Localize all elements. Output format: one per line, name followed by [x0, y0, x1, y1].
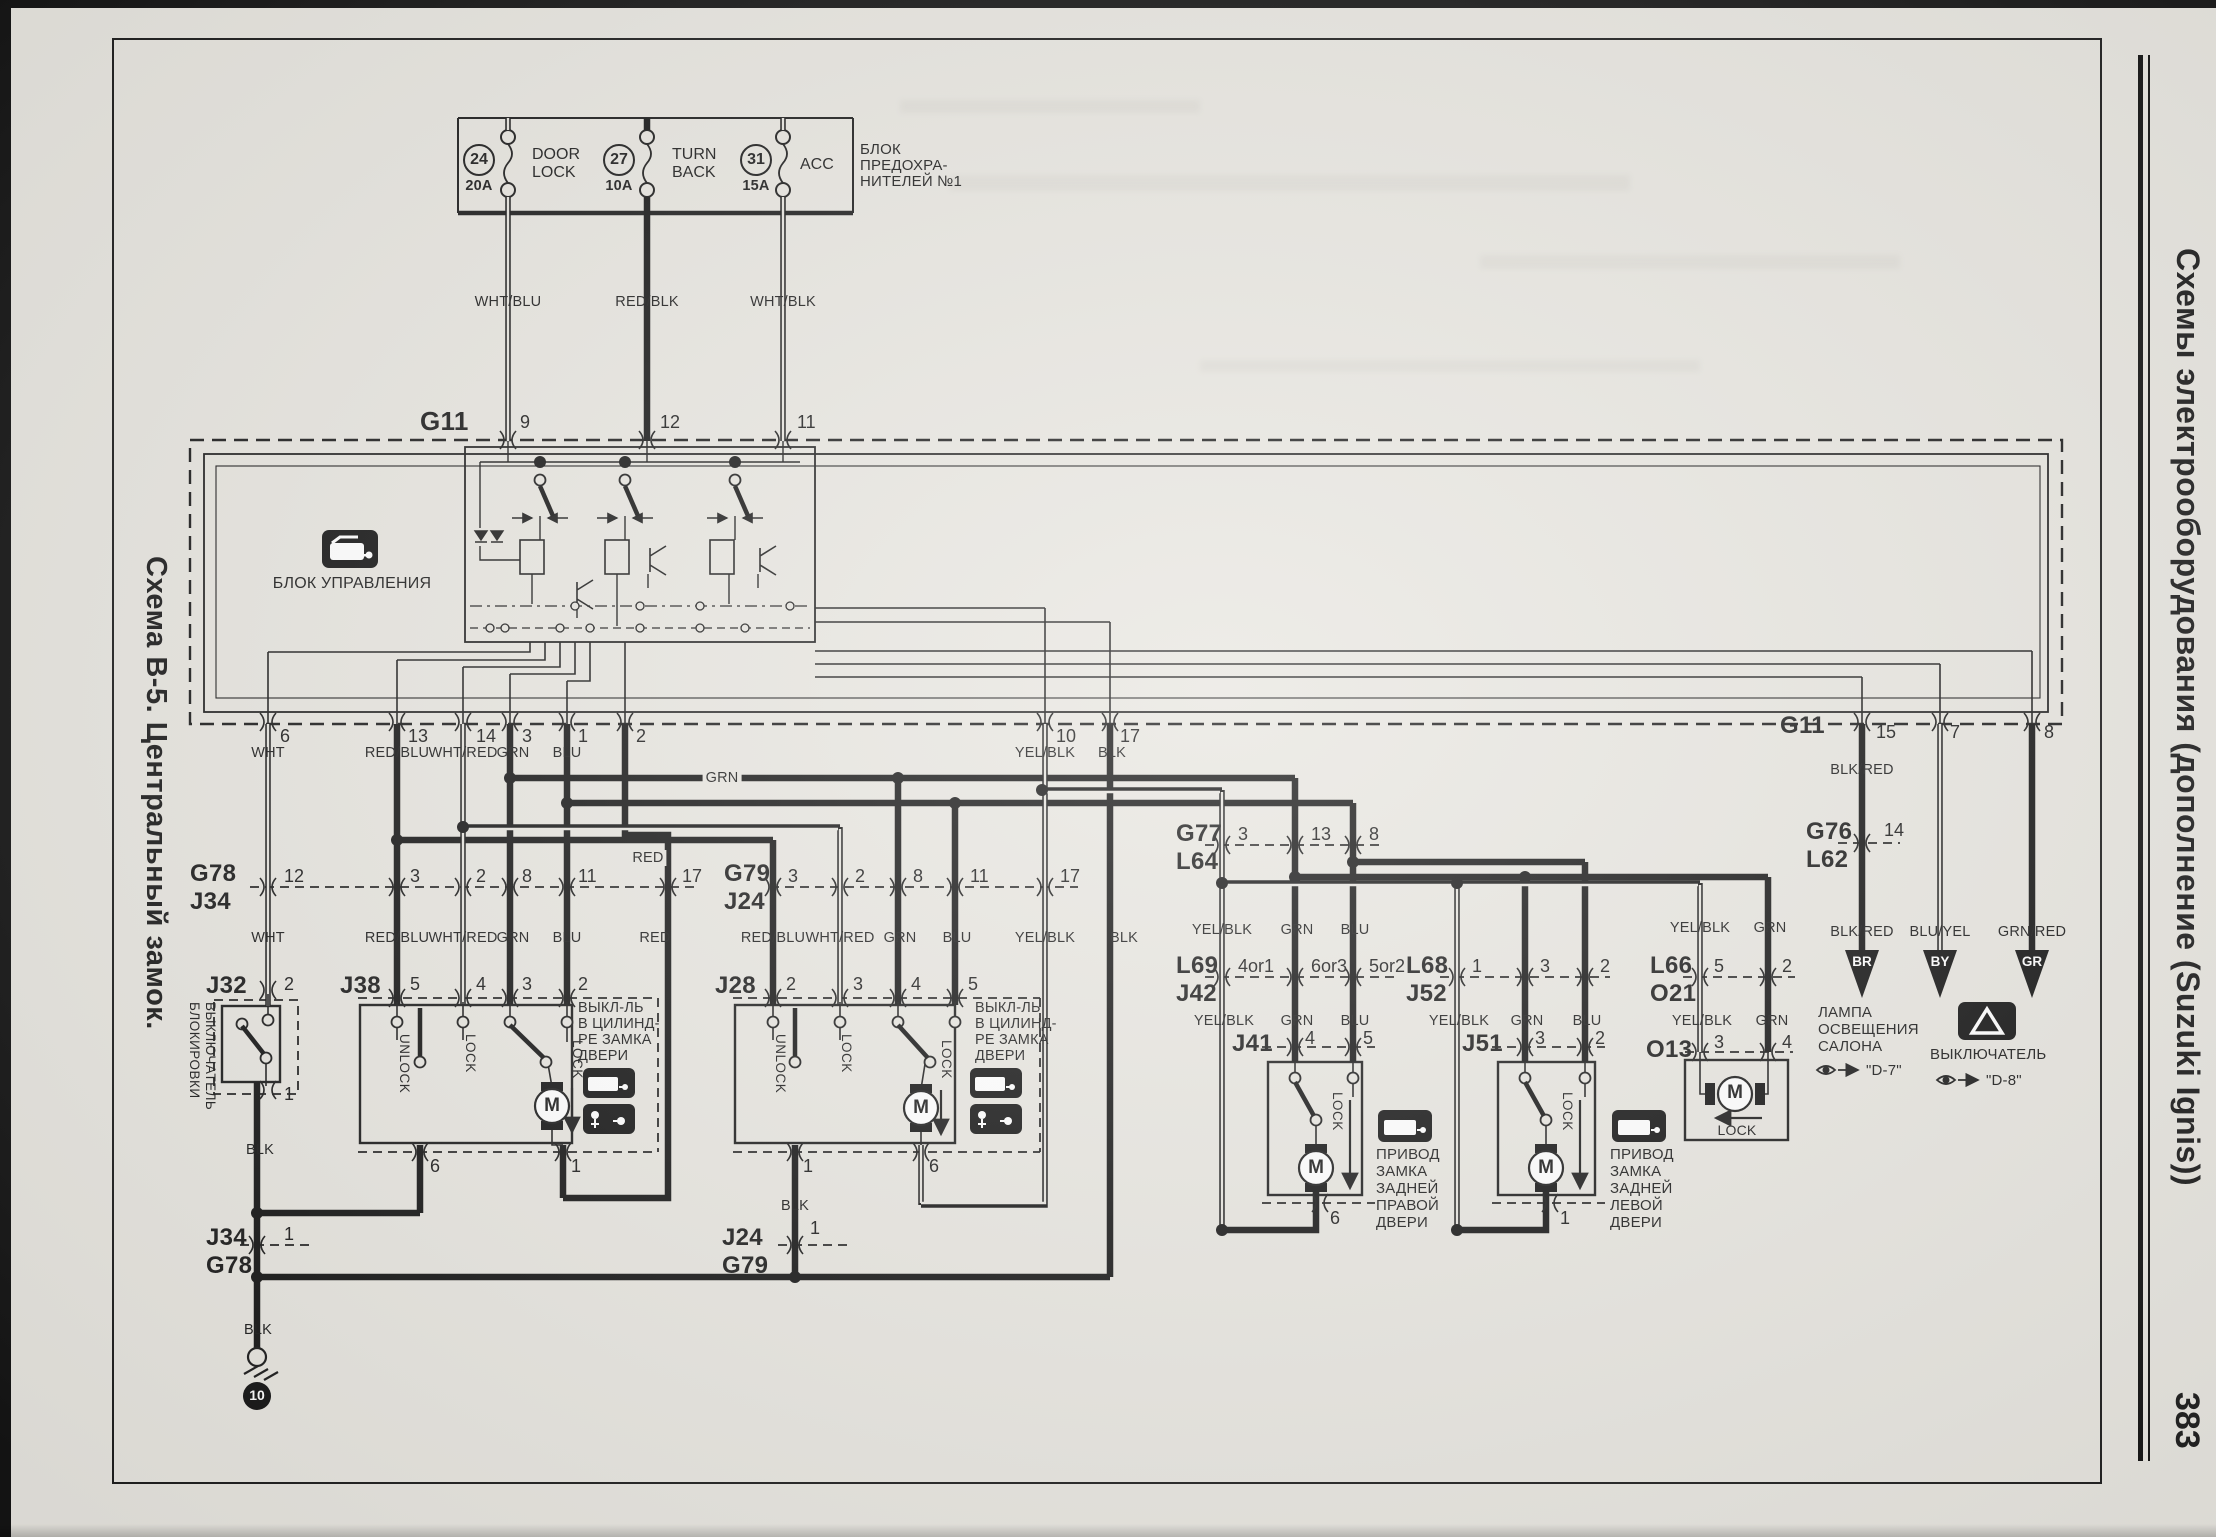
- wire-grn: [510, 724, 1768, 1062]
- wire-label: BLK: [1110, 930, 1138, 946]
- wire-label: YEL/BLK: [1429, 1013, 1489, 1029]
- pin: 2: [284, 974, 294, 995]
- junction-dot: [251, 1207, 263, 1219]
- contact-circle: [392, 1017, 403, 1028]
- fuse-31-amp: 15A: [742, 178, 769, 194]
- j32-label: ВЫКЛЮЧАТЕЛЬБЛОКИРОВКИ: [186, 1002, 218, 1112]
- junction-dot: [1347, 856, 1359, 868]
- switch-lever: [898, 1025, 928, 1058]
- j28-lock: LOCK: [839, 1034, 854, 1073]
- switch-lever: [1295, 1082, 1314, 1116]
- circuit-terminal: [571, 602, 579, 610]
- pin: 1: [803, 1156, 813, 1177]
- pin: 12: [284, 866, 304, 887]
- junction-dot: [457, 821, 469, 833]
- scan-edge-bottom: [0, 1524, 2216, 1537]
- cu-pin: 17: [1120, 726, 1140, 747]
- wire-label: BLU: [1573, 1013, 1602, 1029]
- connector-l62: L62: [1806, 846, 1848, 874]
- contact-circle: [415, 1057, 426, 1068]
- junction-dot: [1216, 1224, 1228, 1236]
- j51-lock: LOCK: [1560, 1092, 1575, 1131]
- junction-dot: [534, 456, 546, 468]
- fuse-27-name: TURN: [672, 146, 716, 164]
- junction-dot: [1451, 1224, 1463, 1236]
- pin: 2: [786, 974, 796, 995]
- j41-label: ДВЕРИ: [1376, 1214, 1428, 1231]
- connector-j52: J52: [1406, 980, 1447, 1008]
- switch-ref: "D-8": [1986, 1072, 2022, 1089]
- pin: 3: [522, 974, 532, 995]
- junction-dot: [391, 834, 403, 846]
- wire-label: RED: [629, 850, 666, 866]
- wire-label: WHT: [251, 745, 285, 761]
- wire-label: BLK: [781, 1198, 809, 1214]
- junction-dot: [1036, 784, 1048, 796]
- lock-arrows: [572, 1088, 1762, 1188]
- contact-circle: [263, 1015, 274, 1026]
- connector-g79: G79: [724, 860, 770, 888]
- contact-circle: [620, 475, 631, 486]
- wire-label: WHT: [251, 930, 285, 946]
- cu-pin: 8: [2044, 722, 2054, 743]
- wire-label: GRN: [1754, 920, 1787, 936]
- cyl-label: ДВЕРИ: [975, 1048, 1025, 1064]
- wire-label: GRN: [1281, 922, 1314, 938]
- fuse-box: [458, 118, 853, 213]
- pin: 4: [1782, 1032, 1792, 1053]
- circuit-terminal: [786, 602, 794, 610]
- connector-g76: G76: [1806, 818, 1852, 846]
- j41-label: ПРИВОД: [1376, 1146, 1440, 1163]
- wire-label: WHT/RED: [428, 930, 497, 946]
- pin: 17: [1060, 866, 1080, 887]
- cyl-label: В ЦИЛИНД-: [975, 1016, 1057, 1032]
- scheme-title: Схема B-5. Центральный замок.: [139, 556, 172, 1030]
- lamp-label: САЛОНА: [1818, 1038, 1882, 1055]
- wire-label: GRN: [884, 930, 917, 946]
- wire-label: GRN: [1281, 1013, 1314, 1029]
- scanned-page: 24 20A DOOR LOCK 27 10A TURN BACK 31 15A…: [0, 0, 2216, 1537]
- fuse-24-number: 24: [470, 151, 488, 169]
- fuse-27-name: BACK: [672, 164, 716, 182]
- connector-g78-b: G78: [206, 1252, 252, 1280]
- pin: 1: [810, 1218, 820, 1239]
- pin: 1: [571, 1156, 581, 1177]
- switch-lever: [1525, 1082, 1544, 1116]
- wire-label: BLK: [246, 1142, 274, 1158]
- fuse-box-title: НИТЕЛЕЙ №1: [860, 173, 962, 190]
- circuit-terminal: [636, 602, 644, 610]
- cyl-label: РЕ ЗАМКА: [975, 1032, 1049, 1048]
- cu-pin: 15: [1876, 722, 1896, 743]
- switch-lever: [510, 1025, 544, 1058]
- arrow-code-by: BY: [1931, 954, 1950, 969]
- hazard-icon: [1958, 1002, 2016, 1040]
- control-unit-circuit: [470, 441, 810, 628]
- cu-pin: 7: [1950, 722, 1960, 743]
- contact-circle: [790, 1057, 801, 1068]
- cyl-label: В ЦИЛИНД-: [578, 1016, 660, 1032]
- pin: 3: [1714, 1032, 1724, 1053]
- pin: 3: [853, 974, 863, 995]
- component-j28: J28: [715, 972, 756, 1000]
- j28-lock2: LOCK: [939, 1040, 954, 1079]
- component-j41: J41: [1232, 1030, 1273, 1058]
- contact-circle: [1348, 1073, 1359, 1084]
- pin: 4or1: [1238, 956, 1274, 977]
- connector-g11-right: G11: [1780, 712, 1825, 740]
- fuse-31-number: 31: [747, 151, 765, 169]
- pin: 3: [410, 866, 420, 887]
- arrow-code-gr: GR: [2022, 954, 2042, 969]
- circuit-terminal: [586, 624, 594, 632]
- pin: 8: [522, 866, 532, 887]
- cu-pin: 2: [636, 726, 646, 747]
- j41-label: ПРАВОЙ: [1376, 1197, 1439, 1214]
- wire-label: GRN/RED: [1998, 924, 2066, 940]
- wire-label: YEL/BLK: [1015, 930, 1075, 946]
- junction-dot: [949, 797, 961, 809]
- cu-pin: 3: [522, 726, 532, 747]
- switch-label: ВЫКЛЮЧАТЕЛЬ: [1930, 1046, 2046, 1063]
- j51-label: ПРИВОД: [1610, 1146, 1674, 1163]
- circuit-terminal: [501, 624, 509, 632]
- connector-l66: L66: [1650, 952, 1692, 980]
- g11-pin: 12: [660, 412, 680, 433]
- circuit-terminal: [696, 602, 704, 610]
- pin: 14: [1884, 820, 1904, 841]
- pin: 3: [1238, 824, 1248, 845]
- wire-label: GRN: [1756, 1013, 1789, 1029]
- pin: 5: [410, 974, 420, 995]
- g11-pin: 9: [520, 412, 530, 433]
- connector-l64: L64: [1176, 848, 1218, 876]
- wire-label: RED/BLU: [741, 930, 805, 946]
- contact-circle: [458, 1017, 469, 1028]
- contact-circle: [1290, 1073, 1301, 1084]
- fuse-24-name: LOCK: [532, 164, 576, 182]
- contact-circle: [950, 1017, 961, 1028]
- component-o13: O13: [1646, 1036, 1692, 1064]
- ground-number: 10: [249, 1387, 265, 1403]
- wire-label: BLU: [1341, 1013, 1370, 1029]
- pin: 2: [476, 866, 486, 887]
- pin: 4: [1305, 1028, 1315, 1049]
- lamp-label: ОСВЕЩЕНИЯ: [1818, 1021, 1919, 1038]
- circuit-terminal: [556, 624, 564, 632]
- motor-letter: M: [544, 1095, 560, 1117]
- pin: 17: [682, 866, 702, 887]
- wire-label: WHT/RED: [428, 745, 497, 761]
- connector-o21: O21: [1650, 980, 1696, 1008]
- connector-l69: L69: [1176, 952, 1218, 980]
- fuse-24-amp: 20A: [465, 178, 492, 194]
- connector-j34: J34: [190, 888, 231, 916]
- circuit-terminal: [636, 624, 644, 632]
- wire-label: GRN: [497, 930, 530, 946]
- fuse-27-number: 27: [610, 151, 628, 169]
- connector-g11: G11: [420, 406, 469, 437]
- j38-unlock: UNLOCK: [397, 1034, 412, 1093]
- contact-circle: [730, 475, 741, 486]
- wire-label: YEL/BLK: [1015, 745, 1075, 761]
- wire-label: WHT/RED: [805, 930, 874, 946]
- pin-bracket: [260, 1081, 276, 1099]
- wire-label: BLK/RED: [1830, 762, 1893, 778]
- o13-lock: LOCK: [1718, 1122, 1757, 1138]
- j41-label: ЗАДНЕЙ: [1376, 1180, 1439, 1197]
- connector-j42: J42: [1176, 980, 1217, 1008]
- pin: 11: [578, 866, 597, 887]
- contact-circle: [768, 1017, 779, 1028]
- contact-circle: [562, 1017, 573, 1028]
- g11-pin: 11: [797, 412, 816, 433]
- junction-dot: [729, 456, 741, 468]
- junction-dot: [1451, 877, 1463, 889]
- motor-letter: M: [1727, 1082, 1743, 1104]
- pin: 4: [476, 974, 486, 995]
- junction-dot: [619, 456, 631, 468]
- pin: 3: [1535, 1028, 1545, 1049]
- pin: 4: [911, 974, 921, 995]
- wire-label: YEL/BLK: [1672, 1013, 1732, 1029]
- control-unit-box: [190, 440, 2062, 724]
- cu-pin: 13: [408, 726, 428, 747]
- junction-dot: [561, 797, 573, 809]
- circuit-terminal: [486, 624, 494, 632]
- pin: 3: [1540, 956, 1550, 977]
- pin: 5: [1363, 1028, 1373, 1049]
- pin: 2: [855, 866, 865, 887]
- pin: 6or3: [1311, 956, 1347, 977]
- component-j38: J38: [340, 972, 381, 1000]
- wire-label: GRN: [497, 745, 530, 761]
- junction-dot: [1216, 877, 1228, 889]
- switch-lever: [242, 1026, 264, 1054]
- arrow-code-br: BR: [1852, 954, 1872, 969]
- contact-circle: [1580, 1073, 1591, 1084]
- wire-label: RED/BLU: [365, 745, 429, 761]
- pin: 2: [1595, 1028, 1605, 1049]
- pin: 1: [284, 1084, 294, 1105]
- motor-letter: M: [1308, 1157, 1324, 1179]
- contact-circle: [535, 475, 546, 486]
- switch-lever: [625, 486, 638, 516]
- wire-label: BLU: [553, 930, 582, 946]
- pin: 1: [284, 1224, 294, 1245]
- wire-label: YEL/BLK: [1670, 920, 1730, 936]
- j51-label: ЛЕВОЙ: [1610, 1197, 1663, 1214]
- wire-label: RED: [639, 930, 670, 946]
- connector-j34-b: J34: [206, 1224, 247, 1252]
- j51-label: ЗАДНЕЙ: [1610, 1180, 1673, 1197]
- wire-label: BLK: [244, 1322, 272, 1338]
- wire-label: WHT/BLU: [475, 294, 542, 310]
- j41-label: ЗАМКА: [1376, 1163, 1427, 1180]
- connector-j24: J24: [724, 888, 765, 916]
- connector-g78: G78: [190, 860, 236, 888]
- fuse-24-name: DOOR: [532, 146, 580, 164]
- wire-label: BLU: [943, 930, 972, 946]
- pin: 2: [578, 974, 588, 995]
- j38-lock: LOCK: [463, 1034, 478, 1073]
- pin: 8: [1369, 824, 1379, 845]
- cu-pin: 14: [476, 726, 496, 747]
- pin: 6: [430, 1156, 440, 1177]
- wire-label: BLU: [553, 745, 582, 761]
- wire-label: BLK: [1098, 745, 1126, 761]
- junction-dot: [1289, 871, 1301, 883]
- junction-dot: [504, 772, 516, 784]
- wire-label: GRN: [703, 770, 742, 786]
- pin: 8: [913, 866, 923, 887]
- cu-pin: 1: [578, 726, 588, 747]
- j28-unlock: UNLOCK: [773, 1034, 788, 1093]
- wire-label: YEL/BLK: [1194, 1013, 1254, 1029]
- connector-g77: G77: [1176, 820, 1222, 848]
- cyl-label: ВЫКЛ-ЛЬ: [578, 1000, 644, 1016]
- junction-dot: [789, 1271, 801, 1283]
- lamp-label: ЛАМПА: [1818, 1004, 1872, 1021]
- cyl-label: ДВЕРИ: [578, 1048, 628, 1064]
- junction-dot: [892, 772, 904, 784]
- pin: 2: [1782, 956, 1792, 977]
- pin: 1: [1472, 956, 1482, 977]
- wire-label: BLK/RED: [1830, 924, 1893, 940]
- motor-letter: M: [1538, 1157, 1554, 1179]
- pin: 1: [1560, 1208, 1570, 1229]
- component-j51: J51: [1462, 1030, 1503, 1058]
- wire-label: WHT/BLK: [750, 294, 816, 310]
- cu-pin: 10: [1056, 726, 1076, 747]
- chapter-title: Схемы электрооборудования (дополнение (S…: [2169, 248, 2206, 1186]
- j51-label: ЗАМКА: [1610, 1163, 1661, 1180]
- component-j32: J32: [206, 972, 247, 1000]
- wire-label: RED/BLU: [365, 930, 429, 946]
- contact-circle: [1520, 1073, 1531, 1084]
- wire-label: GRN: [1511, 1013, 1544, 1029]
- j41-lock: LOCK: [1330, 1092, 1345, 1131]
- cu-pin: 6: [280, 726, 290, 747]
- fuse-box-title: БЛОК: [860, 141, 901, 158]
- circuit-terminal: [696, 624, 704, 632]
- lamp-ref: "D-7": [1866, 1062, 1902, 1079]
- switch-lever: [540, 486, 553, 516]
- switch-lever: [735, 486, 748, 516]
- wire-label: YEL/BLK: [1192, 922, 1252, 938]
- pin: 5: [1714, 956, 1724, 977]
- pin: 6: [929, 1156, 939, 1177]
- circuit-terminal: [741, 624, 749, 632]
- pin: 3: [788, 866, 798, 887]
- pin: 2: [1600, 956, 1610, 977]
- fuse-box-title: ПРЕДОХРА-: [860, 157, 948, 174]
- fuse-27-amp: 10A: [605, 178, 632, 194]
- wire-label: RED/BLK: [615, 294, 678, 310]
- connector-j24-b: J24: [722, 1224, 763, 1252]
- fuse-31-name: ACC: [800, 156, 834, 174]
- cyl-label: РЕ ЗАМКА: [578, 1032, 652, 1048]
- connector-l68: L68: [1406, 952, 1448, 980]
- contact-circle: [835, 1017, 846, 1028]
- wire-label: BLU: [1341, 922, 1370, 938]
- pin: 13: [1311, 824, 1331, 845]
- page-number: 383: [2167, 1392, 2206, 1449]
- motor-letter: M: [913, 1097, 929, 1119]
- junction-dot: [251, 1271, 263, 1283]
- connector-g79-b: G79: [722, 1252, 768, 1280]
- junction-dot: [1519, 871, 1531, 883]
- control-unit-label: БЛОК УПРАВЛЕНИЯ: [273, 575, 431, 593]
- pin: 6: [1330, 1208, 1340, 1229]
- pin: 11: [970, 866, 989, 887]
- cyl-label: ВЫКЛ-ЛЬ: [975, 1000, 1041, 1016]
- j51-label: ДВЕРИ: [1610, 1214, 1662, 1231]
- pin: 5: [968, 974, 978, 995]
- pin: 5or2: [1369, 956, 1405, 977]
- wire-redblu: [397, 724, 773, 1005]
- wire-label: BLU/YEL: [1909, 924, 1970, 940]
